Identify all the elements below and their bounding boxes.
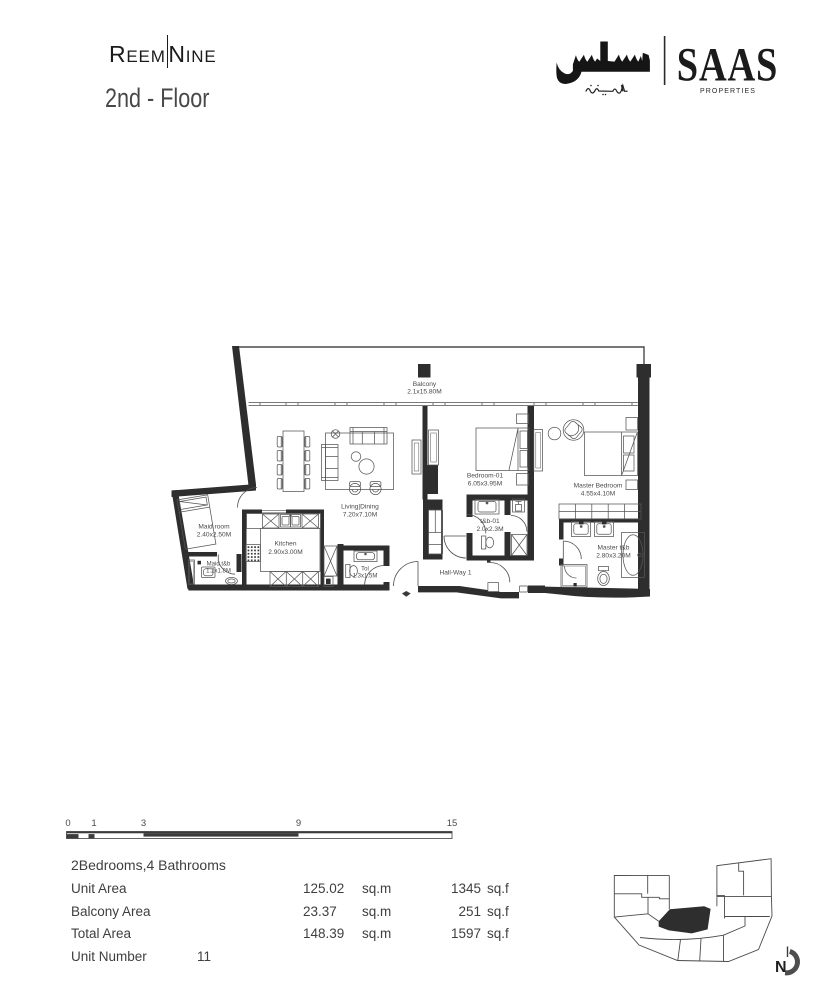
svg-text:1.2x1.8M: 1.2x1.8M	[206, 569, 231, 575]
svg-text:3: 3	[141, 818, 146, 829]
svg-text:N: N	[775, 959, 787, 976]
svg-text:15: 15	[447, 818, 458, 829]
svg-text:0: 0	[65, 818, 70, 829]
svg-text:2.40x2.50M: 2.40x2.50M	[197, 532, 231, 539]
svg-text:2.0x2.3M: 2.0x2.3M	[476, 526, 503, 533]
svg-text:Balcony: Balcony	[413, 381, 437, 388]
svg-text:Master t&b: Master t&b	[598, 545, 630, 552]
svg-text:Kitchen: Kitchen	[275, 541, 297, 548]
svg-text:Hall-Way 1: Hall-Way 1	[440, 570, 472, 577]
svg-text:Tol: Tol	[361, 567, 369, 573]
svg-text:SAAS: SAAS	[677, 39, 778, 92]
svg-text:6.05x3.95M: 6.05x3.95M	[468, 481, 502, 488]
svg-text:1.3x1.5M: 1.3x1.5M	[353, 574, 378, 580]
svg-text:Bedroom-01: Bedroom-01	[467, 473, 504, 480]
svg-text:2.90x3.00M: 2.90x3.00M	[268, 549, 302, 556]
svg-text:PROPERTIES: PROPERTIES	[700, 88, 756, 95]
svg-text:Maid t&b: Maid t&b	[207, 562, 231, 568]
svg-text:2.1x15.80M: 2.1x15.80M	[407, 389, 441, 396]
svg-text:1: 1	[91, 818, 96, 829]
svg-text:Living|Dining: Living|Dining	[341, 504, 379, 511]
svg-text:Maid room: Maid room	[198, 524, 230, 531]
svg-text:7.20x7.10M: 7.20x7.10M	[343, 512, 377, 519]
svg-text:2.80x3.20M: 2.80x3.20M	[596, 553, 630, 560]
svg-text:t&b-01: t&b-01	[480, 518, 500, 525]
svg-text:Master Bedroom: Master Bedroom	[574, 483, 623, 490]
svg-text:4.55x4.10M: 4.55x4.10M	[581, 491, 615, 498]
svg-text:9: 9	[296, 818, 301, 829]
